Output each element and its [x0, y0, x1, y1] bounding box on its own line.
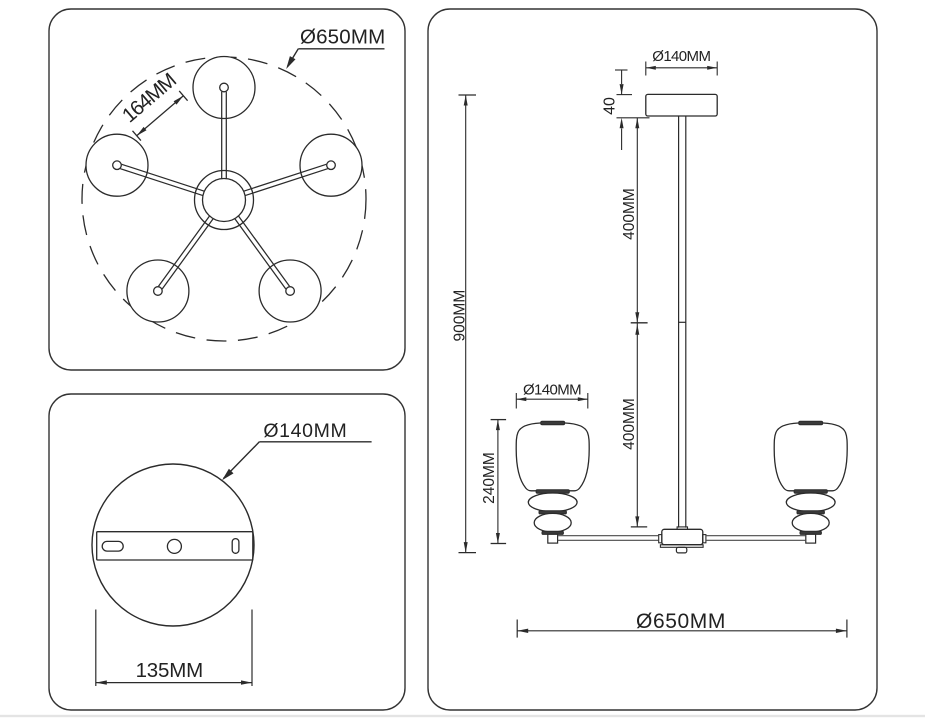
svg-text:Ø650MM: Ø650MM	[300, 26, 386, 49]
svg-text:Ø140MM: Ø140MM	[523, 382, 581, 399]
svg-text:400MM: 400MM	[621, 188, 638, 240]
svg-text:135MM: 135MM	[136, 659, 203, 682]
svg-text:400MM: 400MM	[621, 398, 638, 450]
svg-text:Ø140MM: Ø140MM	[652, 48, 710, 65]
svg-text:240MM: 240MM	[481, 452, 498, 504]
svg-text:Ø140MM: Ø140MM	[263, 420, 347, 442]
svg-text:900MM: 900MM	[451, 290, 468, 342]
svg-text:Ø650MM: Ø650MM	[636, 610, 726, 633]
svg-text:40: 40	[602, 97, 619, 115]
